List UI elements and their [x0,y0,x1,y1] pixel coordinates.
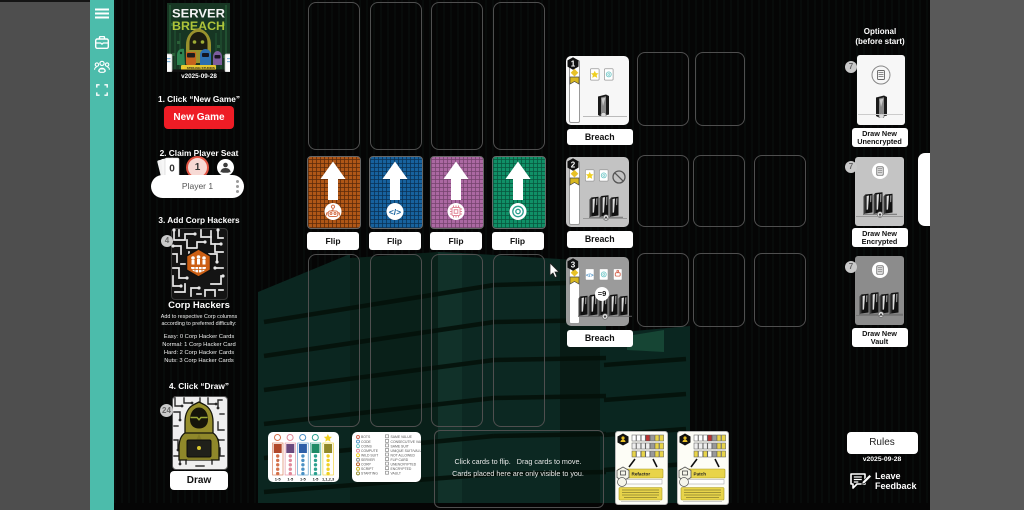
svg-text:SERVER: SERVER [361,457,375,461]
svg-text:⚡ STIRLING STUDIOS: ⚡ STIRLING STUDIOS [182,66,215,70]
svg-text:COMPUTE: COMPUTE [361,448,379,452]
svg-text:WILD SUIT: WILD SUIT [361,453,378,457]
svg-text:3: 3 [570,260,575,269]
svg-text:NOT ALLOWED: NOT ALLOWED [390,453,415,457]
svg-text:BOTS: BOTS [361,435,371,439]
svg-text:1,1,2,3: 1,1,2,3 [321,476,334,481]
svg-text:Refactor: Refactor [632,472,651,477]
svg-text:</>: </> [586,273,594,279]
svg-text:1-5: 1-5 [287,476,294,481]
svg-text:0: 0 [169,164,175,175]
svg-text:1-5: 1-5 [274,476,281,481]
svg-text:CODE: CODE [361,439,372,443]
svg-text:STARTING: STARTING [361,471,378,475]
svg-text:CORP: CORP [361,462,372,466]
svg-text:1-5: 1-5 [312,476,319,481]
svg-text:FLIP CARD: FLIP CARD [390,457,408,461]
svg-text:1-5: 1-5 [300,476,307,481]
svg-text:SAME VALUE: SAME VALUE [390,435,412,439]
svg-text:SAME SUIT: SAME SUIT [390,444,408,448]
svg-text:UNENCRYPTED: UNENCRYPTED [390,462,416,466]
svg-text:UNIQUE SUIT/VALUE: UNIQUE SUIT/VALUE [390,448,421,452]
svg-text:SCRIPT: SCRIPT [361,467,373,471]
svg-text:COINS: COINS [361,444,372,448]
svg-text:VAULT: VAULT [390,471,400,475]
svg-text:1: 1 [570,59,575,68]
svg-text:Patch: Patch [693,472,706,477]
svg-text:ENCRYPTED: ENCRYPTED [390,467,411,471]
svg-text:2: 2 [570,161,575,170]
svg-text:</>: </> [388,207,400,217]
svg-text:CONSECUTIVE VALUE: CONSECUTIVE VALUE [390,439,421,443]
